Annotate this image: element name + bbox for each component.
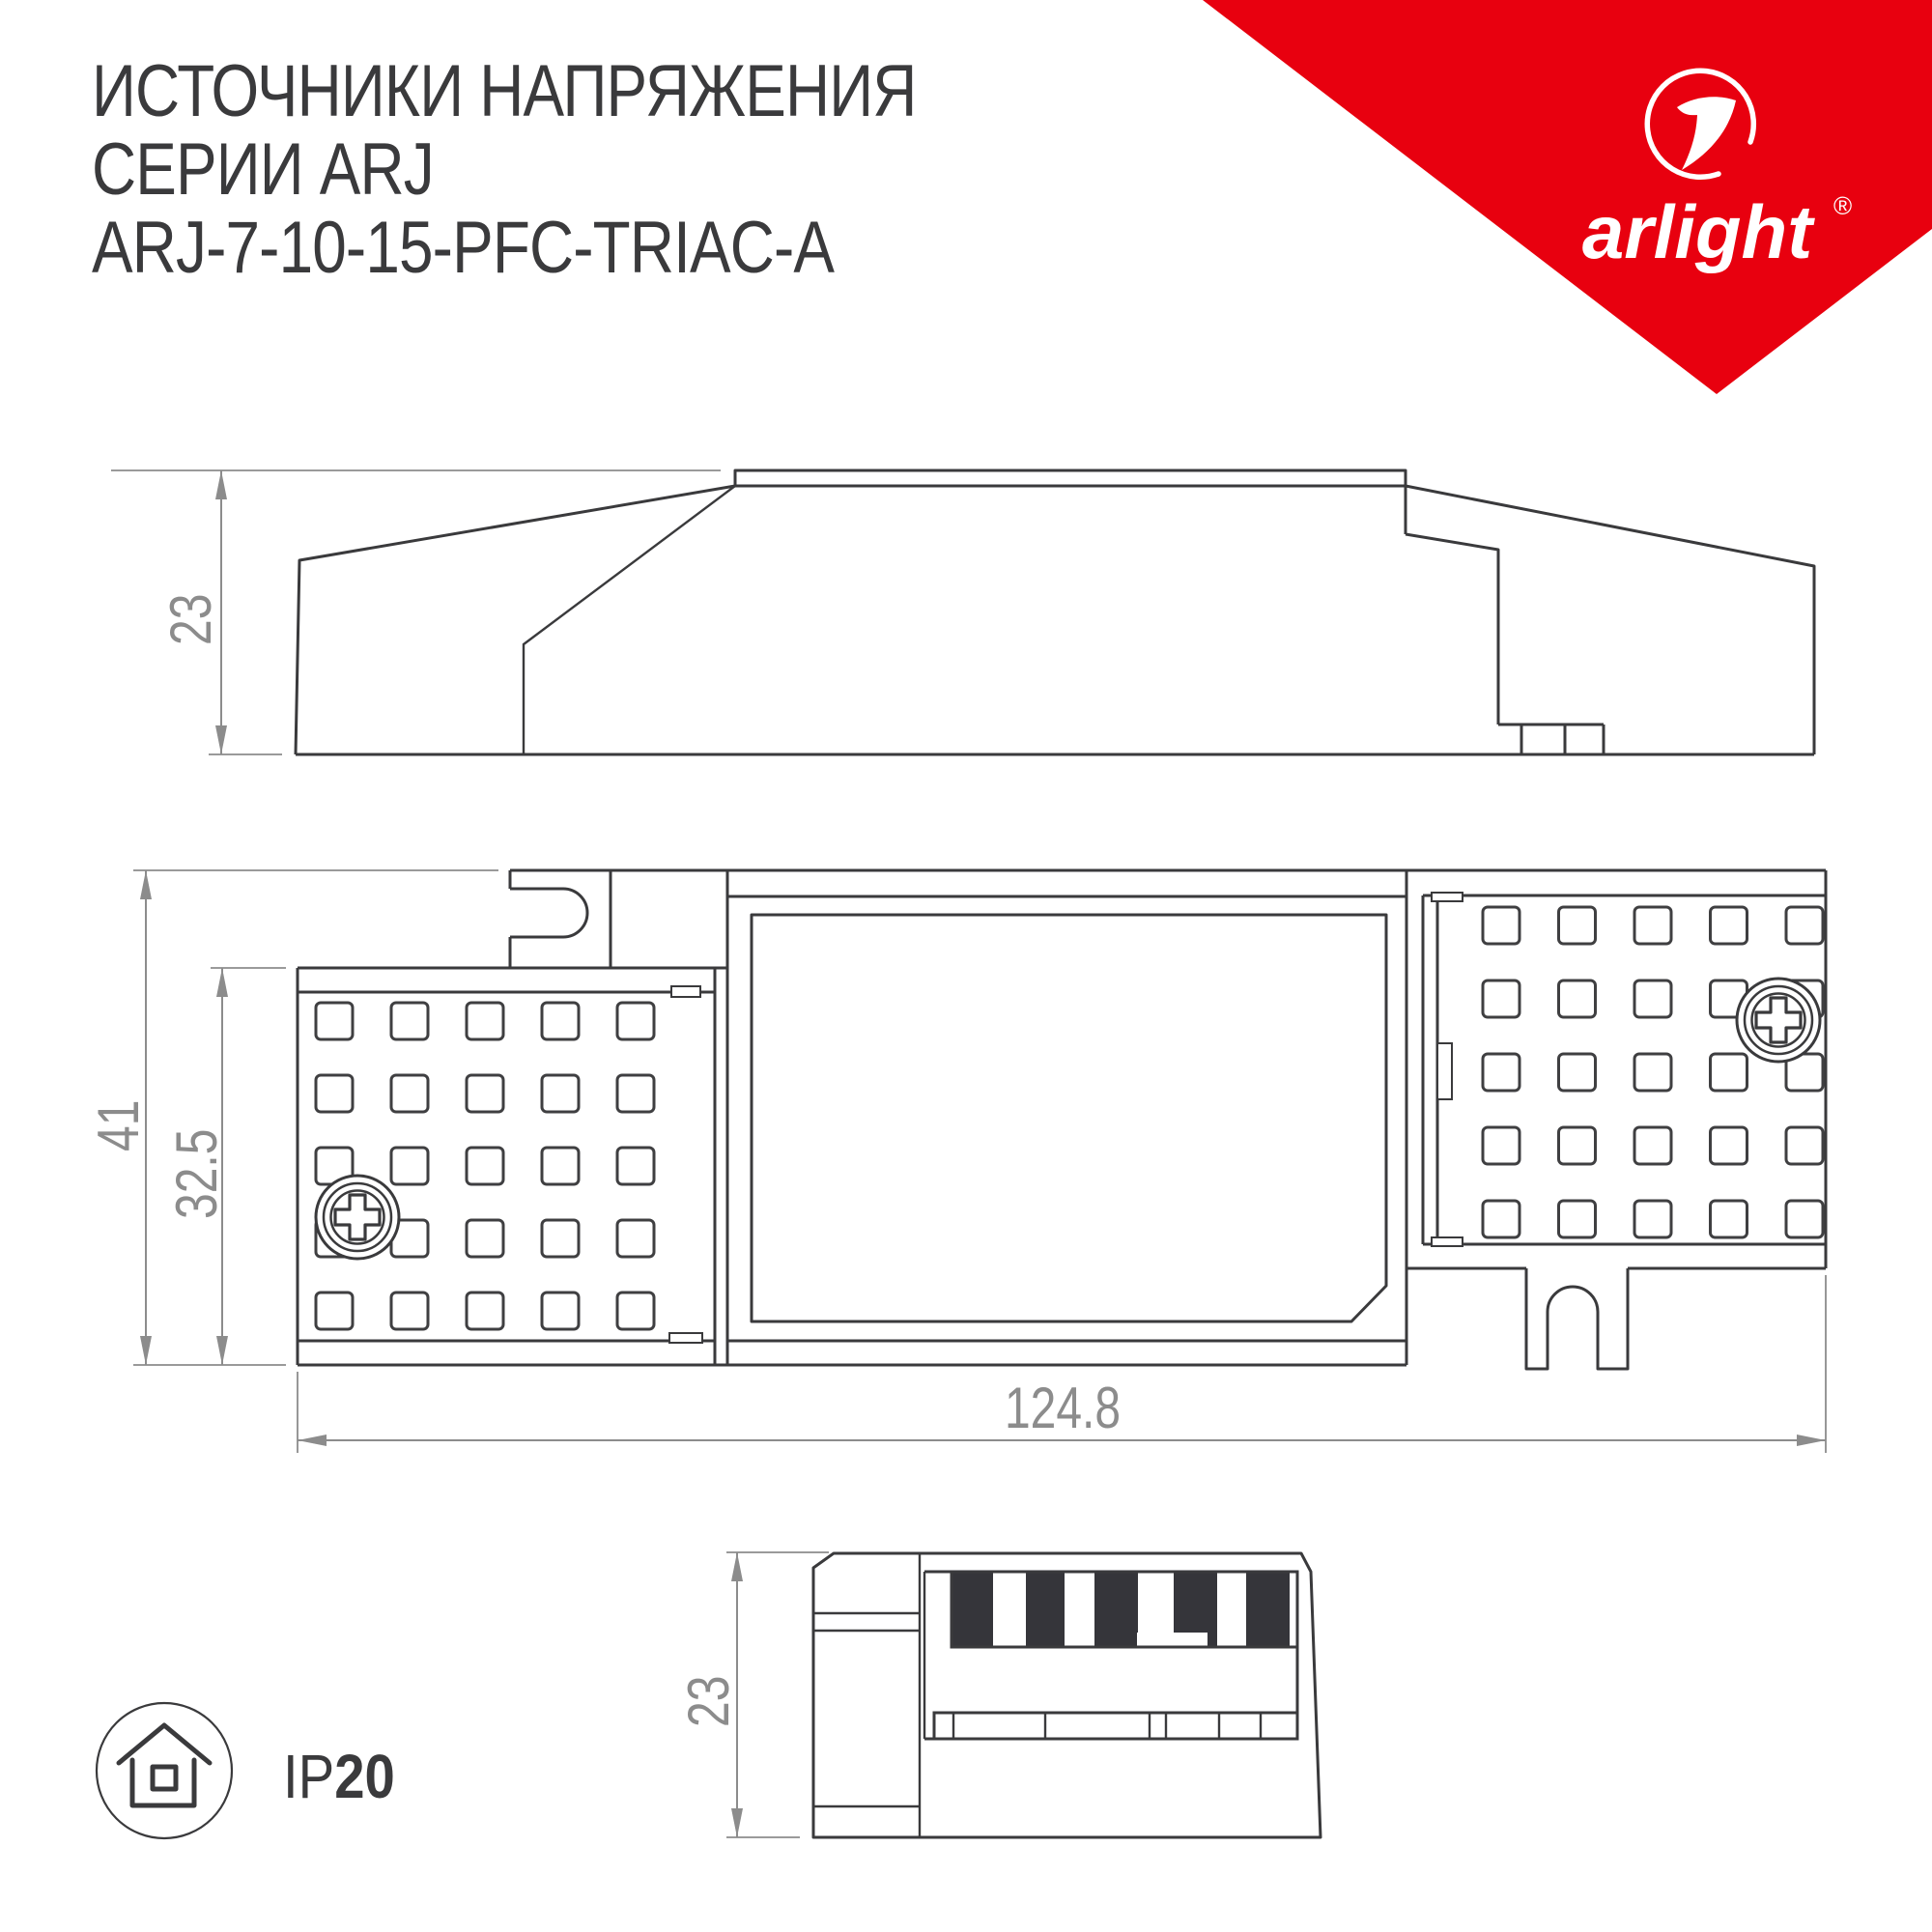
ip-value: 20 xyxy=(334,1742,395,1811)
end-height-dimension-label: 23 xyxy=(676,1676,741,1727)
left-screw-icon xyxy=(316,1176,399,1259)
plan-view: 41 32.5 124.8 xyxy=(86,870,1826,1453)
end-view-flange-lines xyxy=(813,1554,924,1837)
ip-prefix: IP xyxy=(283,1742,334,1811)
bottom-mounting-tab xyxy=(1526,1268,1628,1369)
arlight-logo: arlight ® xyxy=(1582,71,1852,274)
registered-trademark-symbol: ® xyxy=(1833,191,1852,220)
datasheet-page: ИСТОЧНИКИ НАПРЯЖЕНИЯ СЕРИИ ARJ ARJ-7-10-… xyxy=(0,0,1932,1932)
plan-body-height-label: 32.5 xyxy=(164,1129,229,1219)
ip-rating-text: IP20 xyxy=(283,1742,395,1811)
terminal-openings xyxy=(952,1572,1297,1647)
plan-width-label: 124.8 xyxy=(1005,1376,1121,1440)
tick-mark xyxy=(671,986,700,997)
ip20-badge: IP20 xyxy=(97,1703,395,1838)
tick-mark xyxy=(669,1333,702,1343)
plan-total-height-label: 41 xyxy=(86,1100,151,1151)
tick-mark xyxy=(1437,1043,1452,1099)
left-perforation-grid xyxy=(314,1001,657,1331)
indoor-use-house-icon xyxy=(119,1725,210,1805)
tick-mark xyxy=(1432,893,1463,901)
right-screw-icon xyxy=(1737,979,1820,1062)
right-perforation-grid xyxy=(1481,904,1826,1239)
central-window xyxy=(752,915,1386,1321)
side-view-inner-step xyxy=(524,486,735,754)
end-view: 23 xyxy=(676,1552,1321,1837)
side-height-dimension-label: 23 xyxy=(158,594,223,645)
terminal-screw-row xyxy=(934,1713,1297,1739)
side-view: 23 xyxy=(111,470,1814,754)
tick-mark xyxy=(1432,1237,1463,1246)
logo-wordmark: arlight xyxy=(1582,189,1815,274)
technical-drawing: 23 xyxy=(0,0,1932,1932)
side-view-terminal-blocks xyxy=(1498,724,1604,754)
